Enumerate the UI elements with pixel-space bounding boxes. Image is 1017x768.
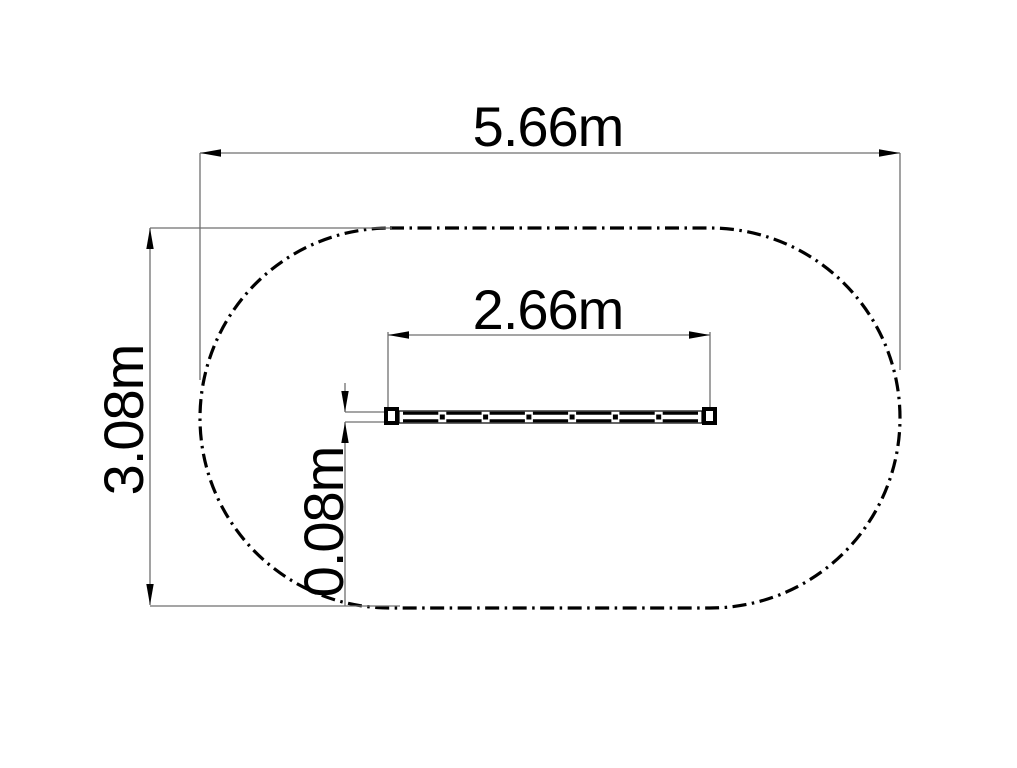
- arrowhead-down: [146, 584, 153, 605]
- beam-length-label: 2.66m: [473, 278, 624, 341]
- beam-thickness-label: 0.08m: [292, 447, 355, 598]
- arrowhead-right: [879, 149, 900, 156]
- arrowhead-down: [341, 391, 348, 412]
- overall-width-label: 5.66m: [473, 95, 624, 158]
- beam: [386, 409, 715, 423]
- technical-drawing: 5.66m 3.08m 2.66m 0.08: [0, 0, 1017, 768]
- arrowhead-up: [146, 228, 153, 249]
- drawing-canvas: 5.66m 3.08m 2.66m 0.08: [0, 0, 1017, 768]
- arrowhead-left: [388, 331, 409, 338]
- dimension-beam-thickness: 0.08m: [292, 383, 386, 606]
- overall-height-label: 3.08m: [92, 345, 155, 496]
- arrowhead-up: [341, 422, 348, 443]
- dimension-beam-length: 2.66m: [388, 278, 710, 407]
- beam-end-cap-left: [386, 409, 397, 423]
- arrowhead-right: [689, 331, 710, 338]
- arrowhead-left: [200, 149, 221, 156]
- beam-end-cap-right: [704, 409, 715, 423]
